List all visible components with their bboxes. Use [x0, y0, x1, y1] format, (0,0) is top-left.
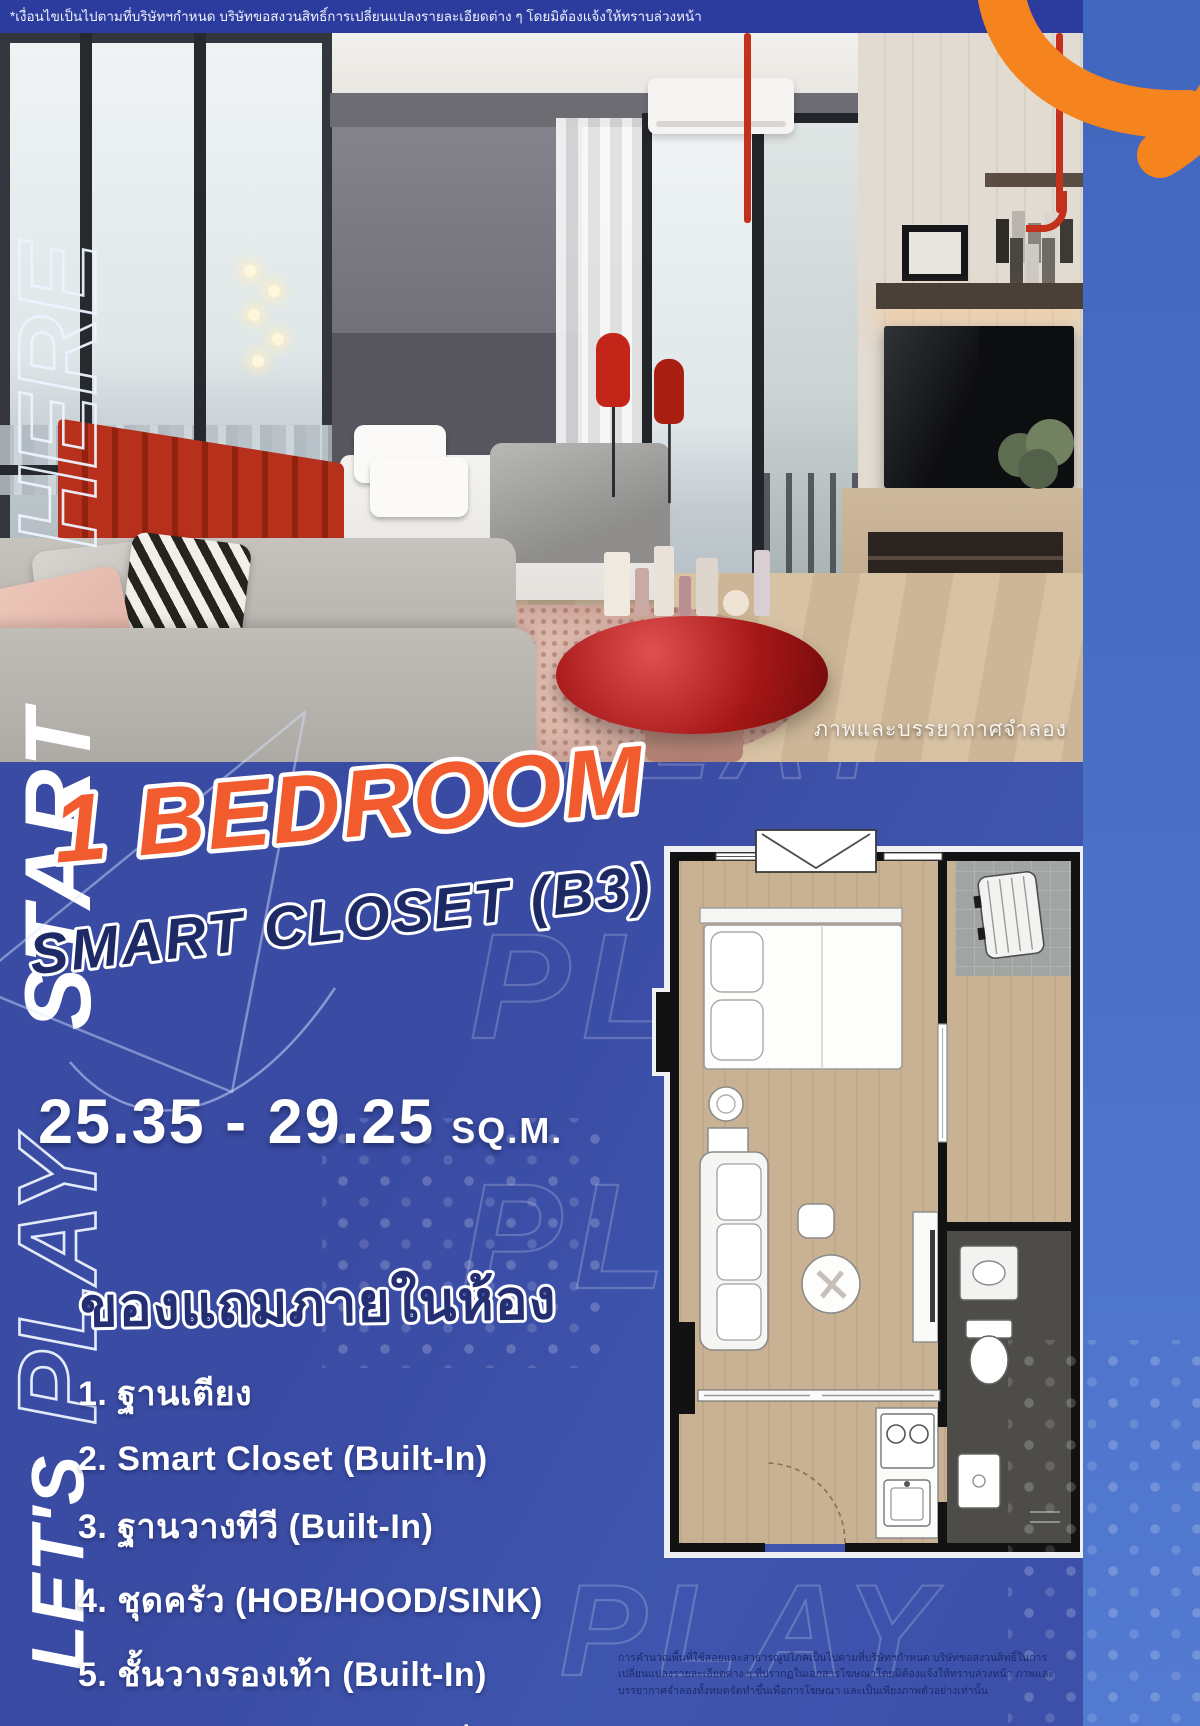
plant — [992, 415, 1083, 507]
freebie-item: 2. Smart Closet (Built-In) — [78, 1440, 543, 1479]
freebies-title-block: ของแถมภายในห้อง — [71, 1245, 613, 1364]
plan-round-table — [802, 1255, 860, 1313]
plan-stool — [798, 1204, 834, 1238]
interior-photo: ภาพและบรรยากาศจำลอง — [0, 33, 1083, 762]
freebies-title: ของแถมภายในห้อง — [79, 1267, 556, 1338]
freebie-item: 3. ฐานวางทีวี (Built-In) — [78, 1499, 543, 1553]
freebie-item: 4. ชุดครัว (HOB/HOOD/SINK) — [78, 1573, 543, 1627]
freebie-item: 6. แอร์ (12000 BTU 1 เครื่อง) — [78, 1721, 543, 1726]
red-mannequin — [654, 359, 684, 503]
plan-closet-zone — [955, 860, 1072, 976]
freebies-list: 1. ฐานเตียง 2. Smart Closet (Built-In) 3… — [78, 1366, 543, 1726]
top-disclaimer-bar: *เงื่อนไขเป็นไปตามที่บริษัทฯกำหนด บริษัท… — [0, 0, 1083, 33]
red-pendant-cord — [744, 33, 751, 223]
red-pendant-cord — [1056, 33, 1063, 213]
picture-frame — [902, 225, 968, 281]
freebie-item: 5. ชั้นวางรองเท้า (Built-In) — [78, 1647, 543, 1701]
plan-sofa — [700, 1152, 768, 1350]
bottom-disclaimer: การคำนวณพื้นที่ใช้สอยและสาธารณูปโภคเป็นไ… — [618, 1650, 1086, 1699]
plan-tv-console — [913, 1212, 938, 1342]
banner-word-here: HERE — [0, 242, 122, 548]
air-conditioner — [648, 78, 794, 134]
plan-vent — [756, 830, 876, 872]
pillow — [370, 457, 468, 517]
size-range-unit: SQ.M. — [451, 1110, 563, 1152]
plan-bed — [700, 908, 902, 1069]
red-mannequin — [596, 333, 630, 497]
size-range-row: 25.35 - 29.25 SQ.M. — [38, 1086, 563, 1158]
floating-shelf — [876, 283, 1083, 309]
books — [1010, 238, 1055, 284]
upper-shelf — [985, 173, 1083, 187]
size-range-value: 25.35 - 29.25 — [38, 1086, 435, 1158]
condo-poster: *เงื่อนไขเป็นไปตามที่บริษัทฯกำหนด บริษัท… — [0, 0, 1200, 1726]
top-disclaimer-text: *เงื่อนไขเป็นไปตามที่บริษัทฯกำหนด บริษัท… — [10, 9, 702, 24]
freebie-item: 1. ฐานเตียง — [78, 1366, 543, 1420]
photo-caption: ภาพและบรรยากาศจำลอง — [814, 713, 1067, 746]
plan-kitchen — [876, 1408, 938, 1538]
cosmetics — [604, 546, 770, 616]
